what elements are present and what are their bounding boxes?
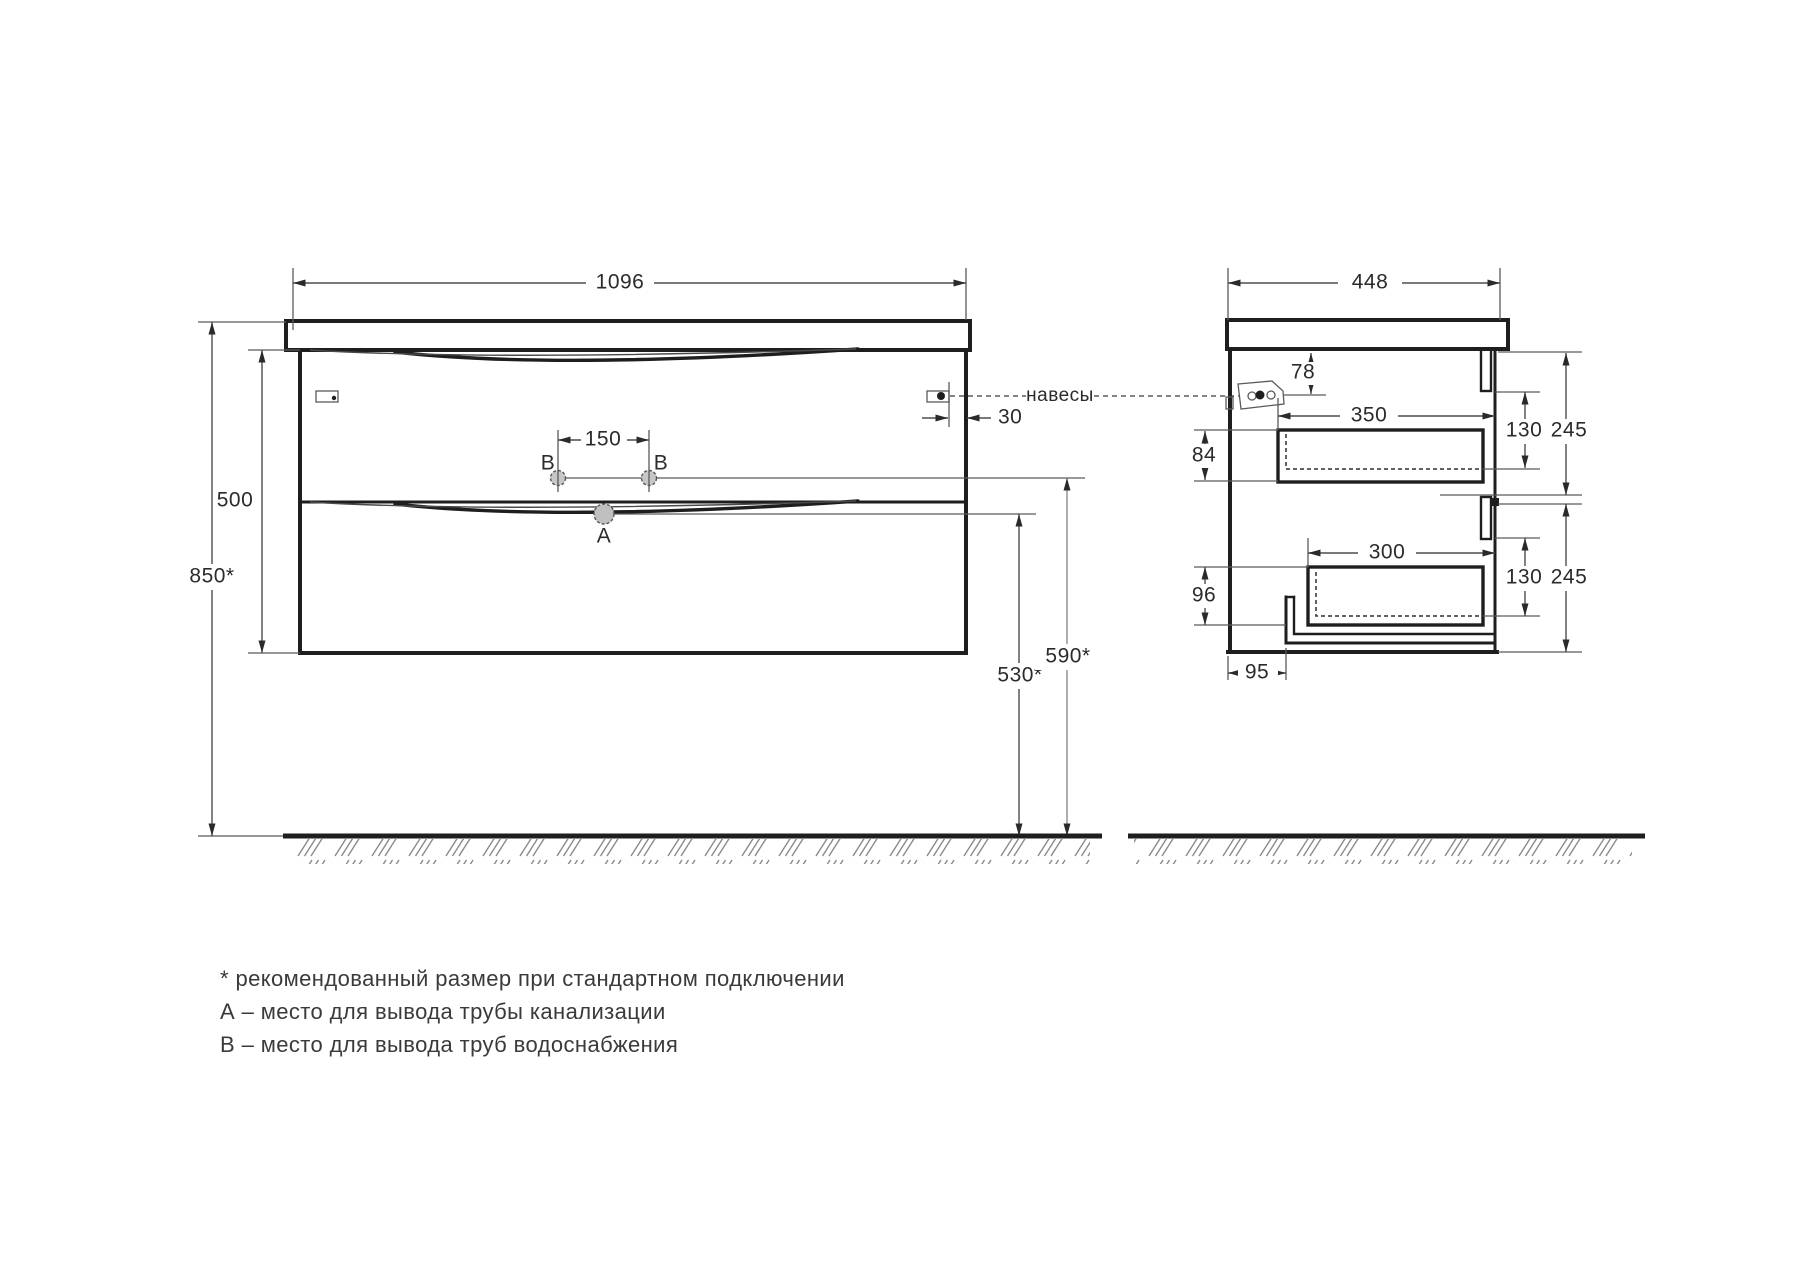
hinge-dot-right-icon (937, 392, 945, 400)
dim-drawer2-offset: 96 (1192, 584, 1216, 607)
side-extension-lines (1194, 268, 1582, 680)
drawing-canvas: 1096 850* 500 150 30 530* 590* B B A нав… (0, 0, 1800, 1273)
label-hinges: навесы (1026, 385, 1094, 406)
technical-drawing: 1096 850* 500 150 30 530* 590* B B A нав… (0, 0, 1800, 1273)
dim-hinge-from-top: 78 (1291, 361, 1315, 384)
label-water-left: B (541, 452, 556, 475)
side-pipe-channel-outer (1286, 597, 1493, 643)
front-countertop (286, 321, 970, 350)
front-view (286, 321, 1085, 653)
floor-hatch-front (290, 839, 1090, 864)
legend: * рекомендованный размер при стандартном… (220, 962, 845, 1061)
front-extension-lines (198, 268, 966, 836)
dim-drawer2-front-height: 245 (1551, 566, 1588, 589)
dim-drawer1-length: 350 (1351, 404, 1388, 427)
dim-outlet-spacing: 150 (585, 428, 622, 451)
dim-front-width: 1096 (596, 271, 645, 294)
dim-side-depth: 448 (1352, 271, 1389, 294)
floor (283, 836, 1645, 864)
side-countertop (1227, 320, 1508, 349)
dim-hinge-inset: 30 (998, 406, 1022, 429)
dim-drawer2-length: 300 (1369, 541, 1406, 564)
side-view (1226, 320, 1508, 652)
hinge-bracket-hole-left (1248, 392, 1256, 400)
dim-drawer1-depth: 130 (1506, 419, 1543, 442)
hinge-bracket-dot (1256, 391, 1265, 400)
legend-note-asterisk: * рекомендованный размер при стандартном… (220, 962, 845, 995)
label-drain: A (597, 525, 612, 548)
hinge-bracket-hole-right (1267, 391, 1275, 399)
dim-front-install-height: 850* (189, 565, 234, 588)
side-drawer1-box-inner (1286, 434, 1483, 469)
side-drawer1-front (1481, 349, 1491, 391)
side-dimensions: 448 78 350 84 300 96 95 130 245 130 245 (1184, 271, 1592, 685)
side-drawer2-front (1481, 497, 1491, 539)
side-drawer-gap-block (1491, 498, 1499, 506)
dim-pipe-offset: 95 (1245, 661, 1269, 684)
side-drawer1-box (1278, 430, 1483, 482)
hinge-dot-left-icon (332, 396, 336, 400)
dim-drawer1-offset: 84 (1192, 444, 1216, 467)
front-dimensions: 1096 850* 500 150 30 530* 590* B B A (181, 271, 1101, 836)
dim-front-cabinet-height: 500 (217, 489, 254, 512)
dim-drawer2-depth: 130 (1506, 566, 1543, 589)
label-water-right: B (654, 452, 669, 475)
legend-note-b: В – место для вывода труб водоснабжения (220, 1028, 845, 1061)
legend-note-a: А – место для вывода трубы канализации (220, 995, 845, 1028)
hinges-callout: навесы (950, 385, 1240, 407)
side-drawer2-box-inner (1316, 572, 1483, 616)
dim-water-height: 590* (1045, 645, 1090, 668)
floor-hatch-side (1134, 839, 1632, 864)
drain-outlet-icon (594, 504, 614, 524)
dim-drawer1-front-height: 245 (1551, 419, 1588, 442)
